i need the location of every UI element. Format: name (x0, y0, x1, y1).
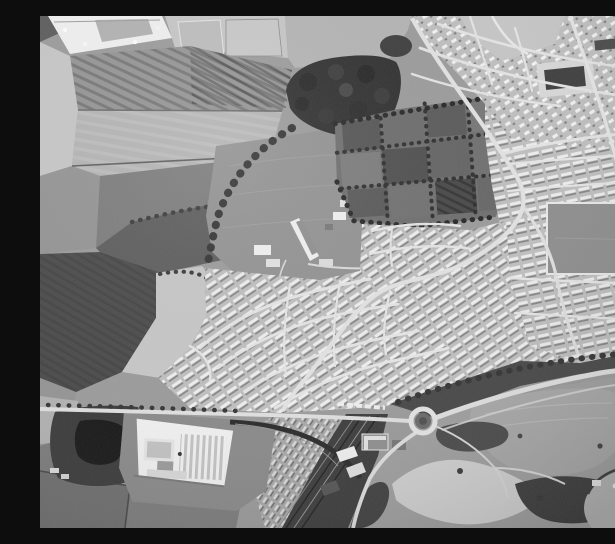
film-grain-overlay (40, 16, 615, 528)
aerial-photograph (40, 16, 615, 528)
aerial-photo-canvas (40, 16, 615, 528)
